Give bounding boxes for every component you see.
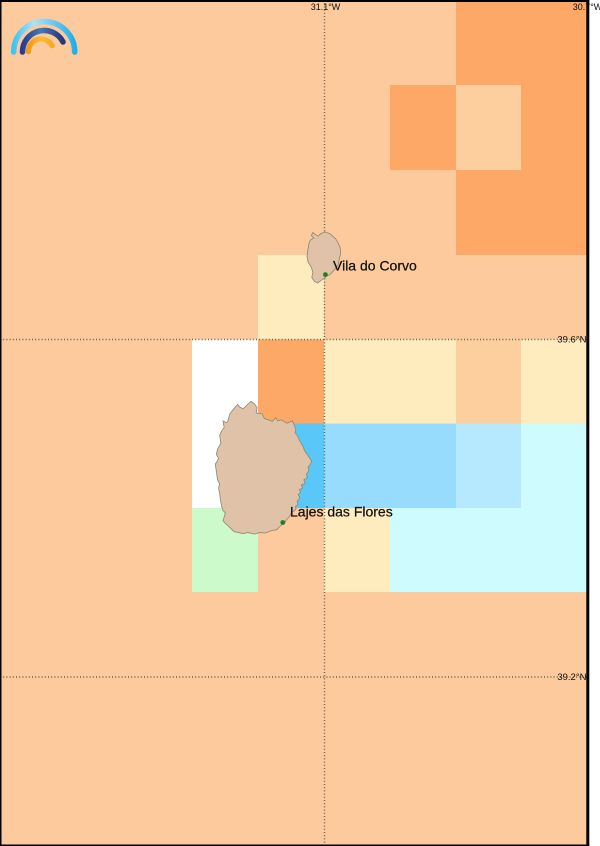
svg-text:31.1°W: 31.1°W <box>311 2 341 12</box>
svg-text:Lajes das Flores: Lajes das Flores <box>290 504 393 520</box>
svg-text:Vila do Corvo: Vila do Corvo <box>333 258 417 274</box>
svg-text:30.7°W: 30.7°W <box>573 2 600 12</box>
svg-text:39.2°N: 39.2°N <box>557 672 586 683</box>
svg-text:39.6°N: 39.6°N <box>557 334 586 345</box>
